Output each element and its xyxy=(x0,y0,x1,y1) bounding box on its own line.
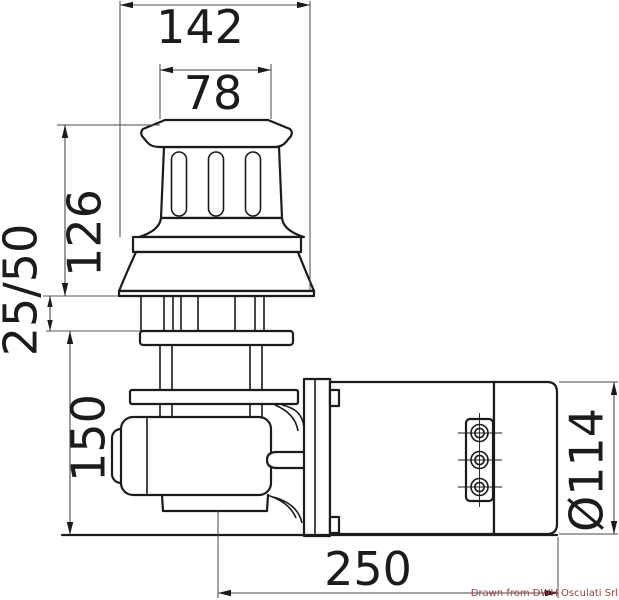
drum-base-flare xyxy=(139,218,304,237)
clamp-plate xyxy=(140,331,293,345)
bell-housing-bottom-arcs xyxy=(267,495,302,523)
motor-flange xyxy=(304,379,330,536)
flange-tab-bottom xyxy=(330,517,339,533)
dim-label-motor-diameter: Ø114 xyxy=(560,408,614,532)
stud-stubs xyxy=(160,404,262,417)
arrow-left xyxy=(160,67,173,73)
dim-label-deck-thickness: 25/50 xyxy=(0,224,48,357)
shaft-column-group xyxy=(140,297,293,390)
bell-housing-top-arcs xyxy=(275,405,304,431)
shaft-column-lines xyxy=(141,297,264,332)
dimension-deck-thickness: 25/50 xyxy=(0,224,53,357)
motor-group xyxy=(304,379,557,536)
arrow-right xyxy=(297,2,310,8)
arrow-left xyxy=(218,590,231,596)
arrow-top xyxy=(62,125,68,138)
arrow-bottom xyxy=(47,320,52,331)
gearbox-body xyxy=(121,417,271,495)
gearbox-foot xyxy=(162,495,268,511)
motor-end-cap xyxy=(494,382,557,534)
mounting-plate xyxy=(130,390,298,404)
drum-top-cap xyxy=(141,120,292,147)
base-skirt-rim xyxy=(119,291,314,296)
arrow-top xyxy=(47,296,52,307)
dim-label-below-deck-height: 150 xyxy=(62,394,116,482)
arrow-top xyxy=(611,382,617,395)
technical-drawing-page: 142 78 126 25/50 150 250 xyxy=(0,0,619,600)
deck-lines xyxy=(43,296,140,331)
arrow-left xyxy=(120,2,133,8)
capstan-drum-group xyxy=(119,120,314,296)
gearbox-group xyxy=(112,390,306,523)
dimension-drum-top-width: 78 xyxy=(160,64,271,120)
windlass-technical-drawing: 142 78 126 25/50 150 250 xyxy=(0,0,619,600)
drum-base-ring xyxy=(133,237,301,252)
dimension-motor-diameter: Ø114 xyxy=(559,382,618,534)
dim-label-overall-length: 250 xyxy=(324,542,412,596)
credit-note: Drawn from DWH Osculati Srl xyxy=(471,588,618,599)
stud-right xyxy=(250,345,262,390)
base-skirt xyxy=(119,252,314,291)
flange-tab-top xyxy=(330,390,339,406)
dim-label-base-width: 142 xyxy=(156,0,244,54)
drum-barrel xyxy=(161,147,282,218)
dim-label-drum-top-width: 78 xyxy=(184,66,243,120)
drive-shaft xyxy=(267,452,306,468)
stud-left xyxy=(160,345,172,390)
arrow-bottom xyxy=(62,283,68,296)
dim-label-above-deck-height: 126 xyxy=(58,189,112,277)
arrow-bottom xyxy=(67,522,73,535)
dimension-below-deck-height: 150 xyxy=(62,331,116,535)
arrow-right xyxy=(258,67,271,73)
arrow-top xyxy=(67,331,73,344)
